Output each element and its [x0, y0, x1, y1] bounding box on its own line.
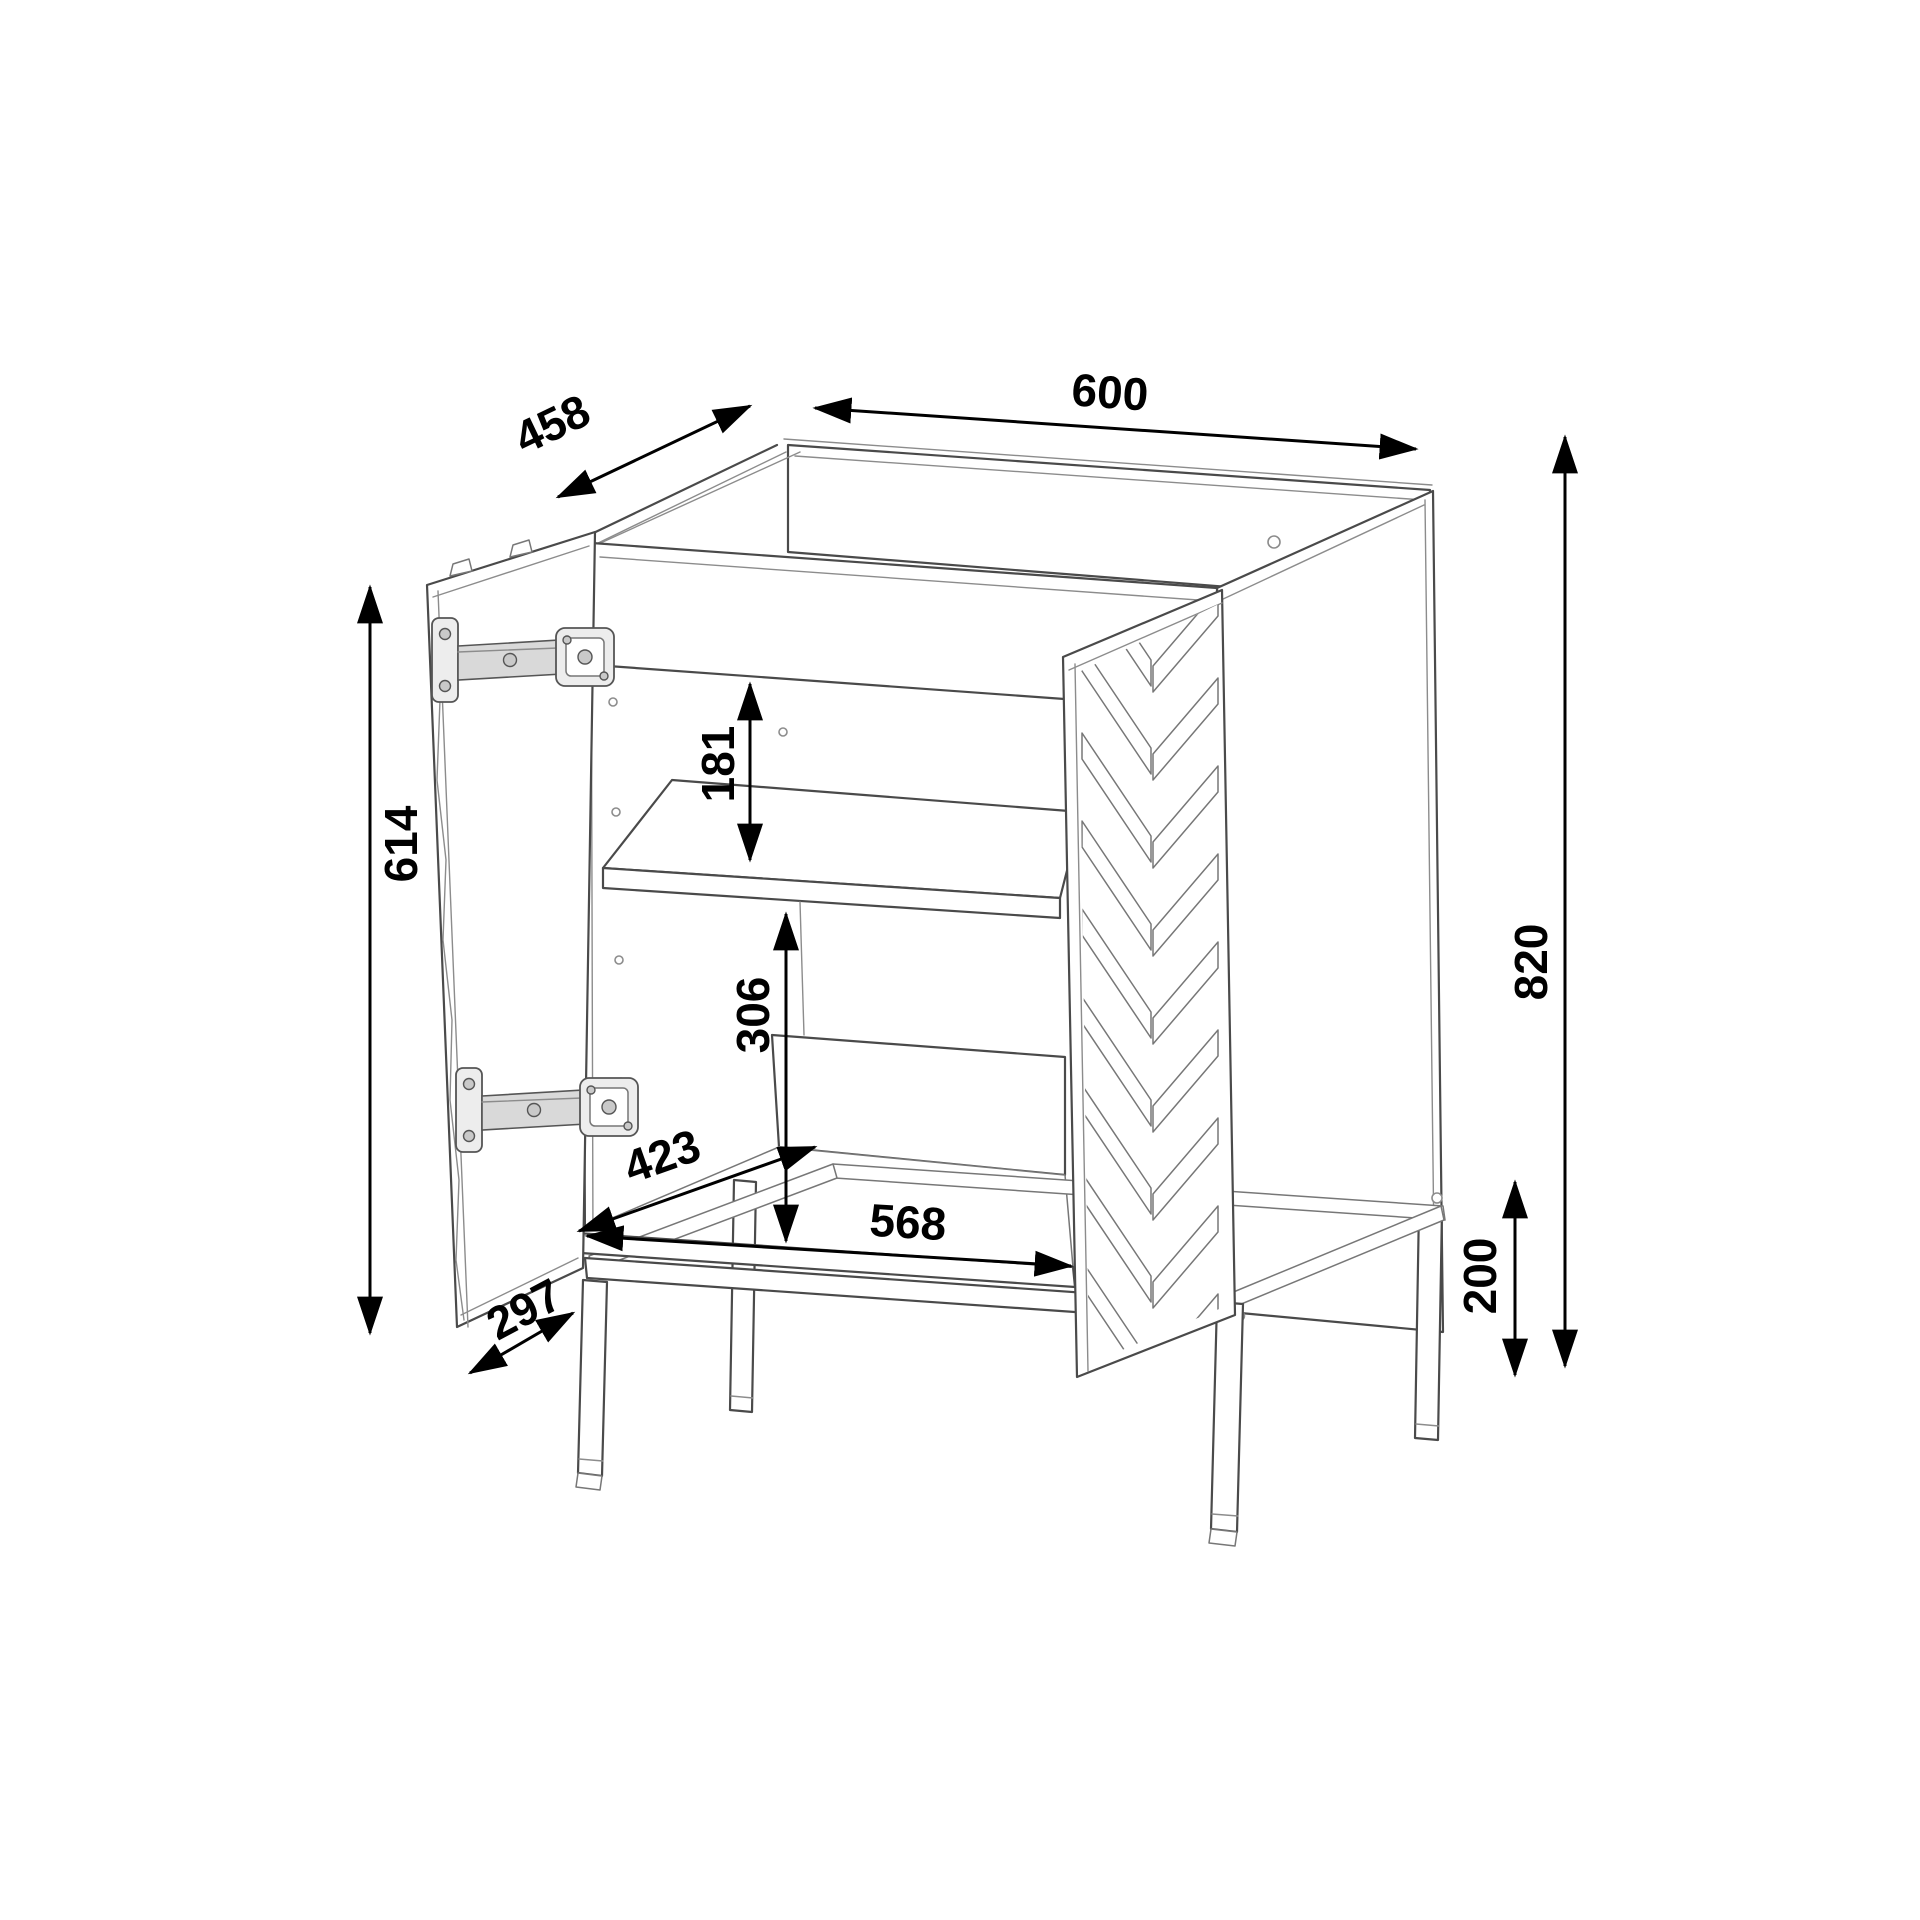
dim-label: 458 — [506, 384, 598, 464]
lower-back-rail — [772, 902, 1065, 1175]
dim-label: 568 — [868, 1194, 948, 1251]
dim-label: 306 — [727, 977, 779, 1054]
dim-label: 181 — [692, 726, 744, 803]
leg-back-right — [1415, 1207, 1442, 1440]
right-door-chevron — [1063, 557, 1235, 1396]
dim-label: 200 — [1454, 1238, 1506, 1315]
dim-door-height-614: 614 — [370, 587, 427, 1333]
leg-front-left — [576, 1280, 607, 1490]
dim-label: 820 — [1505, 924, 1557, 1001]
cabinet-dimension-drawing-page: 458 600 820 200 614 181 306 423 — [0, 0, 1920, 1920]
dim-label: 614 — [375, 805, 427, 882]
dim-overall-depth-458: 458 — [506, 384, 750, 497]
dim-label: 600 — [1070, 363, 1150, 420]
dim-leg-height-200: 200 — [1454, 1182, 1515, 1375]
leg-front-right — [1209, 1302, 1243, 1546]
screw-hole — [1268, 536, 1280, 548]
cabinet-dimension-drawing: 458 600 820 200 614 181 306 423 — [0, 0, 1920, 1920]
dim-overall-width-600: 600 — [815, 363, 1416, 449]
shelf — [603, 780, 1082, 918]
